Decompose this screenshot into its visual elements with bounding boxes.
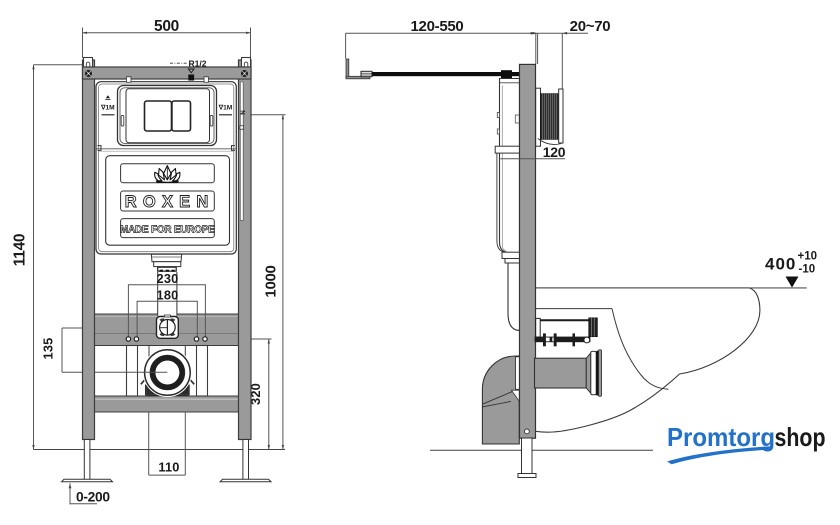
svg-text:shop: shop [775,422,826,452]
svg-text:-10: -10 [799,264,816,276]
svg-text:120-550: 120-550 [411,18,464,35]
svg-text:400: 400 [765,255,796,274]
svg-text:120: 120 [543,144,566,160]
svg-text:R1/2: R1/2 [189,59,207,69]
svg-text:230: 230 [157,271,179,286]
svg-text:1140: 1140 [12,234,29,266]
svg-text:ROXEN: ROXEN [125,193,215,211]
svg-text:135: 135 [41,338,56,360]
svg-text:1000: 1000 [263,265,280,297]
svg-text:110: 110 [158,460,179,475]
svg-text:∇1M: ∇1M [218,104,233,112]
svg-text:0-200: 0-200 [76,490,110,505]
svg-text:N: N [240,110,247,115]
svg-text:+10: +10 [798,251,818,263]
svg-text:180: 180 [157,288,179,303]
svg-text:20~70: 20~70 [570,18,611,35]
svg-text:MADE FOR EUROPE: MADE FOR EUROPE [120,224,215,235]
svg-text:∇1M: ∇1M [100,104,115,112]
